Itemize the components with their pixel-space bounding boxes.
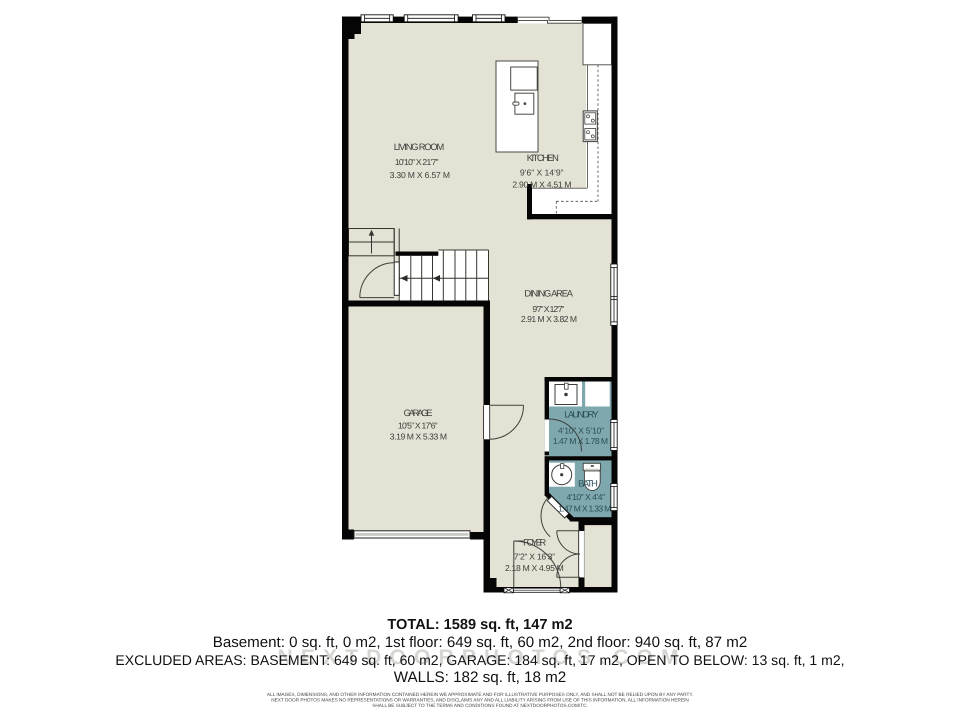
svg-text:DINING AREA: DINING AREA [524,289,573,299]
svg-text:2.18 M X 4.95 M: 2.18 M X 4.95 M [505,563,564,573]
svg-text:1.47 M X 1.78 M: 1.47 M X 1.78 M [553,436,608,446]
svg-text:FOYER: FOYER [523,538,546,548]
svg-text:Basement: 0 sq. ft, 0 m2, 1st: Basement: 0 sq. ft, 0 m2, 1st floor: 649… [213,634,747,651]
svg-text:KITCHEN: KITCHEN [527,153,559,163]
svg-text:4’10” X 4’4”: 4’10” X 4’4” [566,492,605,502]
svg-text:LAUNDRY: LAUNDRY [564,410,598,420]
svg-text:BATH: BATH [578,479,598,489]
svg-text:9’6” X 14’9”: 9’6” X 14’9” [520,168,564,178]
svg-text:4’10” X 5’10”: 4’10” X 5’10” [558,426,604,436]
svg-text:TOTAL: 1589 sq. ft, 147 m2: TOTAL: 1589 sq. ft, 147 m2 [387,617,572,633]
svg-text:10’10” X 21’7”: 10’10” X 21’7” [395,157,439,167]
svg-text:9’7” X 12’7”: 9’7” X 12’7” [532,304,564,314]
svg-text:NEXT DOOR PHOTOS MAKES NO REPR: NEXT DOOR PHOTOS MAKES NO REPRESENTATION… [271,698,689,703]
svg-text:3.30 M X 6.57 M: 3.30 M X 6.57 M [390,170,450,180]
svg-text:ALL IMAGES, DIMENSIONS, AND OT: ALL IMAGES, DIMENSIONS, AND OTHER INFORM… [267,692,693,697]
svg-text:2.91 M X 3.82 M: 2.91 M X 3.82 M [521,314,577,324]
svg-text:3.19 M X 5.33 M: 3.19 M X 5.33 M [390,432,447,442]
svg-text:7’2” X 16’3”: 7’2” X 16’3” [514,552,555,562]
svg-text:SHALL BE SUBJECT TO THE TERMS: SHALL BE SUBJECT TO THE TERMS AND CONDIT… [372,703,588,708]
svg-text:LIVING ROOM: LIVING ROOM [394,142,444,152]
svg-text:WALLS: 182 sq. ft, 18 m2: WALLS: 182 sq. ft, 18 m2 [394,669,567,686]
svg-text:1.47 M X 1.33 M: 1.47 M X 1.33 M [558,504,611,514]
svg-text:2.90 M X 4.51 M: 2.90 M X 4.51 M [512,180,571,190]
svg-text:10’5” X 17’6”: 10’5” X 17’6” [398,421,438,431]
svg-text:EXCLUDED AREAS: BASEMENT: 649: EXCLUDED AREAS: BASEMENT: 649 sq. ft, 60… [115,652,844,668]
svg-text:GARAGE: GARAGE [404,408,433,418]
